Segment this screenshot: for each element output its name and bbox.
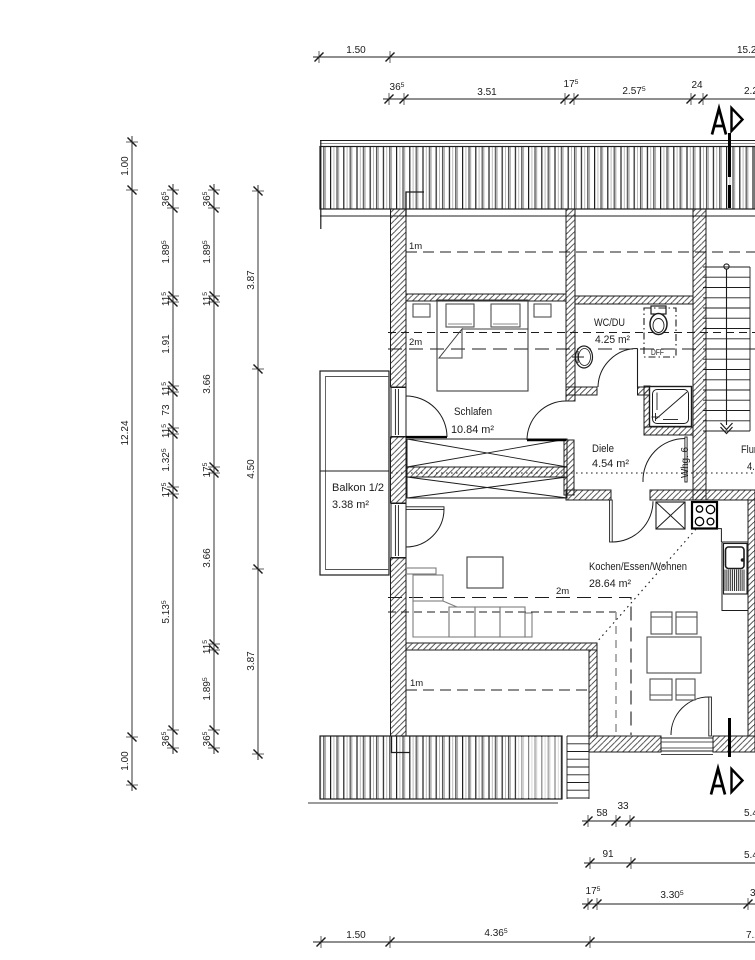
svg-text:3.51: 3.51 <box>477 87 497 98</box>
svg-text:1.91: 1.91 <box>161 334 172 354</box>
svg-text:3.66: 3.66 <box>202 374 213 394</box>
svg-text:1.00: 1.00 <box>120 156 131 176</box>
svg-text:1m: 1m <box>409 241 422 252</box>
svg-text:4.50: 4.50 <box>246 459 257 479</box>
svg-text:10.84 m²: 10.84 m² <box>451 424 494 436</box>
svg-text:Balkon 1/2: Balkon 1/2 <box>332 482 384 494</box>
svg-text:5.4: 5.4 <box>744 850 755 861</box>
svg-text:1m: 1m <box>410 678 423 689</box>
svg-text:3: 3 <box>750 888 755 899</box>
svg-text:5.4: 5.4 <box>744 808 755 819</box>
svg-text:1.00: 1.00 <box>120 751 131 771</box>
svg-text:3.87: 3.87 <box>246 270 257 290</box>
svg-text:2m: 2m <box>409 337 422 348</box>
svg-text:4.25 m²: 4.25 m² <box>595 334 630 346</box>
svg-text:Flur: Flur <box>741 444 755 456</box>
svg-text:91: 91 <box>602 849 614 860</box>
svg-text:Schlafen: Schlafen <box>454 406 492 418</box>
svg-text:3.66: 3.66 <box>202 548 213 568</box>
svg-text:12.24: 12.24 <box>120 420 131 445</box>
svg-text:3.38 m²: 3.38 m² <box>332 499 369 511</box>
svg-text:DFF: DFF <box>651 347 664 357</box>
svg-text:Kochen/Essen/Wohnen: Kochen/Essen/Wohnen <box>589 561 687 573</box>
svg-text:1.50: 1.50 <box>346 930 366 941</box>
svg-text:4.54 m²: 4.54 m² <box>592 458 629 470</box>
svg-text:28.64 m²: 28.64 m² <box>589 578 631 590</box>
svg-text:WC/DU: WC/DU <box>594 317 625 329</box>
svg-text:3.87: 3.87 <box>246 651 257 671</box>
svg-text:73: 73 <box>161 404 172 416</box>
svg-text:Diele: Diele <box>592 443 614 455</box>
svg-text:2.2: 2.2 <box>744 86 755 97</box>
svg-text:15.2: 15.2 <box>737 45 755 56</box>
svg-text:7.2: 7.2 <box>746 930 755 941</box>
svg-text:24: 24 <box>691 80 703 91</box>
svg-text:58: 58 <box>596 808 608 819</box>
svg-text:33: 33 <box>617 801 629 812</box>
svg-text:4.3: 4.3 <box>747 461 755 473</box>
svg-text:1.50: 1.50 <box>346 45 366 56</box>
svg-text:2m: 2m <box>556 586 569 597</box>
